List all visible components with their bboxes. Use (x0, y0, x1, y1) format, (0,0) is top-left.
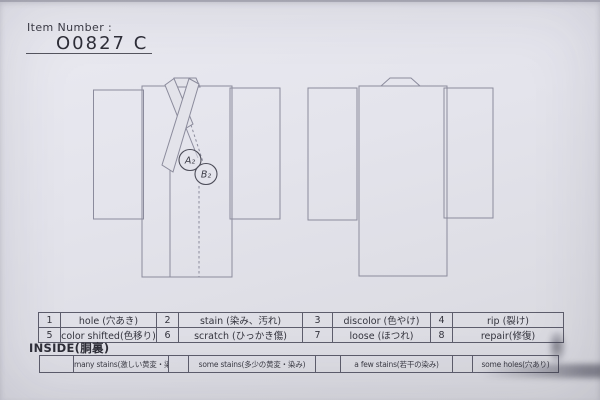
inside-checkbox-cell (316, 356, 341, 373)
defect-label: hole (穴あき) (61, 313, 157, 328)
defect-code: 3 (303, 313, 333, 328)
inside-checkbox-cell (40, 356, 74, 373)
kimono-back-diagram (308, 78, 493, 276)
inside-section-title: INSIDE(胴裏) (29, 340, 109, 356)
kimono-front-diagram: A₂ B₂ (94, 78, 281, 277)
defect-table-row: 1 hole (穴あき) 2 stain (染み、汚れ) 3 discolor … (39, 313, 564, 328)
photo-bottom-right-shadow (480, 364, 600, 378)
defect-code: 1 (39, 313, 61, 328)
defect-label: repair(修復) (453, 328, 564, 343)
inside-checkbox-cell (453, 356, 473, 373)
inside-option-label: some stains(多少の黄変・染み) (189, 356, 316, 373)
back-right-sleeve (444, 88, 493, 218)
front-left-sleeve (94, 90, 144, 219)
defect-code: 2 (157, 313, 179, 328)
back-left-sleeve (308, 88, 357, 220)
photo-shadow-smudge (549, 332, 567, 364)
defect-label: discolor (色やけ) (333, 313, 431, 328)
defect-label: scratch (ひっかき傷) (179, 328, 303, 343)
front-right-sleeve (230, 88, 280, 219)
back-body (359, 86, 447, 276)
inside-option-label: a few stains(若干の染み) (341, 356, 453, 373)
defect-table-row: 5 color shifted(色移り) 6 scratch (ひっかき傷) 7… (39, 328, 564, 343)
inside-checkbox-cell (169, 356, 189, 373)
defect-code: 6 (157, 328, 179, 343)
defect-mark-label-a: A₂ (184, 156, 195, 167)
defect-label: loose (ほつれ) (333, 328, 431, 343)
defect-code: 7 (303, 328, 333, 343)
defect-mark-label-b: B₂ (201, 170, 212, 181)
defect-code-table: 1 hole (穴あき) 2 stain (染み、汚れ) 3 discolor … (38, 312, 564, 343)
defect-code: 8 (431, 328, 453, 343)
inspection-sheet-photo: Item Number : O0827 C A₂ B₂ (0, 0, 600, 400)
defect-label: rip (裂け) (453, 313, 564, 328)
defect-code: 4 (431, 313, 453, 328)
defect-label: stain (染み、汚れ) (179, 313, 303, 328)
inside-option-label: many stains(激しい黄変・染み) (74, 356, 169, 373)
back-collar-tab (381, 78, 420, 86)
